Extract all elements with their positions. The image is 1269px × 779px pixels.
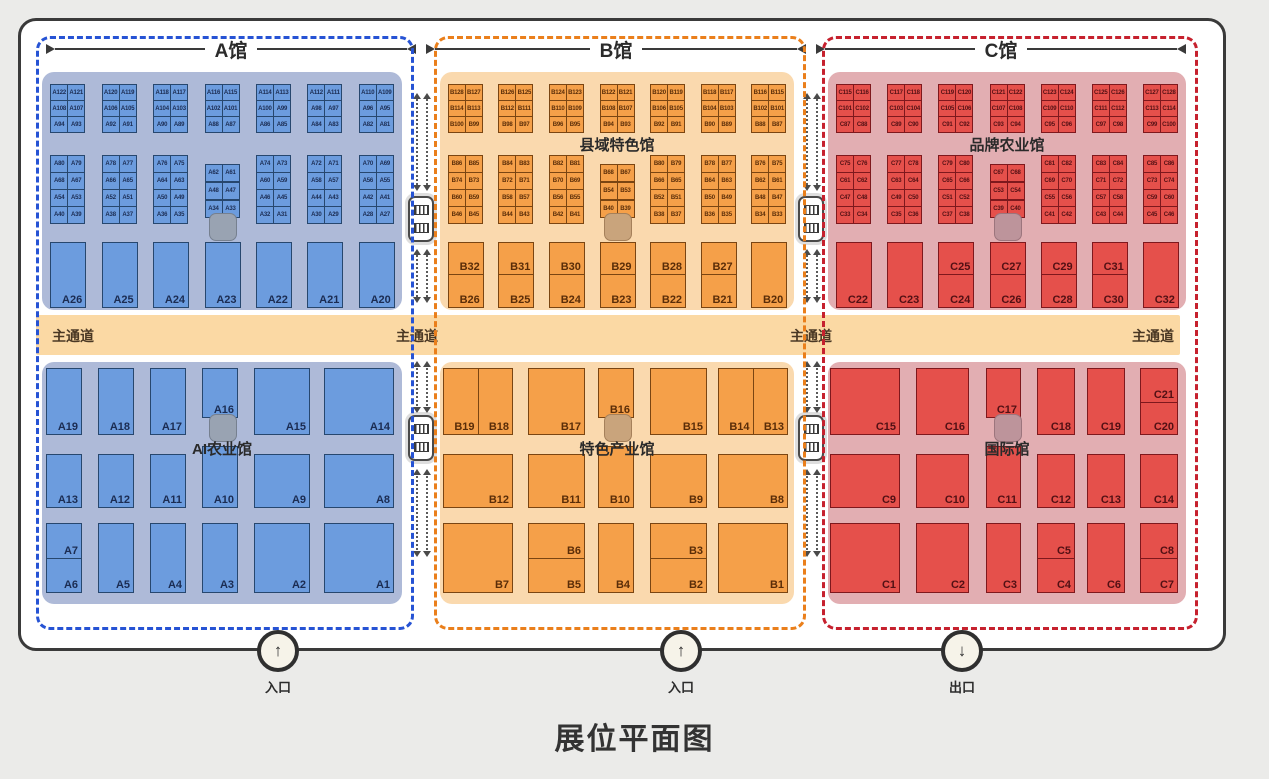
booth-C8-C7: C8C7 [1140, 523, 1178, 593]
arrowhead-icon [407, 44, 416, 54]
booth-A112: A112 [307, 84, 325, 101]
booth-A38: A38 [102, 206, 120, 224]
booth-B60: B60 [448, 189, 466, 207]
booth-label: C6 [1088, 524, 1124, 592]
booth-A118: A118 [153, 84, 171, 101]
booth-C90: C90 [904, 116, 922, 133]
booth-label: C23 [888, 243, 922, 307]
booth-C89: C89 [887, 116, 905, 133]
main-aisle: 主通道 主通道 主通道 主通道 [36, 315, 1180, 355]
booth-label: B22 [651, 275, 685, 307]
booth-label: B12 [444, 455, 512, 507]
booth-A12: A12 [98, 454, 134, 508]
booth-A53: A53 [67, 189, 85, 207]
booth-C77: C77 [887, 155, 905, 173]
main-aisle-label: 主通道 [790, 326, 832, 346]
hall-B-name: B馆 [590, 36, 643, 63]
hall-B-bottom-section-label: 特色产业馆 [440, 438, 794, 459]
booth-A98: A98 [307, 100, 325, 117]
booth-B84: B84 [498, 155, 516, 173]
booth-B31: B31 [499, 243, 533, 275]
booth-A81: A81 [376, 116, 394, 133]
booth-A13: A13 [46, 454, 82, 508]
booth-B114: B114 [448, 100, 466, 117]
booth-B72: B72 [498, 172, 516, 190]
booth-label: B23 [601, 275, 635, 307]
booth-B1: B1 [718, 523, 788, 593]
booth-C1: C1 [830, 523, 900, 593]
booth-B56: B56 [549, 189, 567, 207]
main-aisle-label: 主通道 [1132, 326, 1174, 346]
booth-B17: B17 [528, 368, 585, 435]
booth-C62: C62 [853, 172, 871, 190]
page-title: 展位平面图 [0, 714, 1269, 758]
entrance-circle: ↑ [257, 630, 299, 672]
booth-split: B14B13 [719, 369, 787, 434]
booth-A93: A93 [67, 116, 85, 133]
booth-B78: B78 [701, 155, 719, 173]
booth-C33: C33 [836, 206, 854, 224]
booth-B119: B119 [667, 84, 685, 101]
booth-B85: B85 [465, 155, 483, 173]
booth-A73: A73 [273, 155, 291, 173]
booth-A82: A82 [359, 116, 377, 133]
escalator-icon [798, 196, 824, 242]
main-aisle-label: 主通道 [52, 326, 94, 346]
booth-A69: A69 [376, 155, 394, 173]
booth-B43: B43 [515, 206, 533, 224]
booth-label: B26 [449, 275, 483, 307]
booth-B87: B87 [768, 116, 786, 133]
booth-C117: C117 [887, 84, 905, 101]
booth-label: C22 [837, 243, 871, 307]
booth-split: B19B18 [444, 369, 512, 434]
two-way-arrow-icon [416, 96, 418, 188]
booth-label: A21 [308, 243, 342, 307]
booth-C63: C63 [887, 172, 905, 190]
booth-B42: B42 [549, 206, 567, 224]
booth-C91: C91 [938, 116, 956, 133]
booth-B66: B66 [650, 172, 668, 190]
booth-A3: A3 [202, 523, 238, 593]
booth-A87: A87 [222, 116, 240, 133]
booth-C111: C111 [1092, 100, 1110, 117]
booth-A72: A72 [307, 155, 325, 173]
booth-A54: A54 [50, 189, 68, 207]
booth-A49: A49 [170, 189, 188, 207]
booth-B115: B115 [768, 84, 786, 101]
booth-B82: B82 [549, 155, 567, 173]
booth-C59: C59 [1143, 189, 1161, 207]
booth-C36: C36 [904, 206, 922, 224]
booth-label: C15 [831, 369, 899, 434]
booth-A39: A39 [67, 206, 85, 224]
booth-C92: C92 [955, 116, 973, 133]
booth-C7: C7 [1141, 559, 1177, 592]
escalator-step [804, 442, 819, 452]
booth-label: B21 [702, 275, 736, 307]
booth-B38: B38 [650, 206, 668, 224]
booth-B111: B111 [515, 100, 533, 117]
booth-A45: A45 [273, 189, 291, 207]
booth-A30: A30 [307, 206, 325, 224]
booth-A61: A61 [222, 164, 240, 182]
booth-B64: B64 [701, 172, 719, 190]
booth-C37: C37 [938, 206, 956, 224]
booth-C24: C25C24 [938, 242, 974, 308]
booth-C127: C127 [1143, 84, 1161, 101]
booth-A23: A23 [205, 242, 241, 308]
two-way-arrow-icon [416, 252, 418, 300]
booth-A60: A60 [256, 172, 274, 190]
hall-C-header: C馆 [816, 41, 1186, 57]
booth-A91: A91 [119, 116, 137, 133]
booth-label: A3 [203, 524, 237, 592]
booth-C108: C108 [1007, 100, 1025, 117]
booth-B46: B46 [448, 206, 466, 224]
booth-B121: B121 [617, 84, 635, 101]
booth-B44: B44 [498, 206, 516, 224]
booth-C15: C15 [830, 368, 900, 435]
booth-A19: A19 [46, 368, 82, 435]
booth-C120: C120 [955, 84, 973, 101]
booth-label: C16 [917, 369, 968, 434]
booth-C47: C47 [836, 189, 854, 207]
entrance-label: 入口 [248, 677, 308, 696]
booth-C14: C14 [1140, 454, 1178, 508]
booth-label: B9 [651, 455, 706, 507]
booth-C16: C16 [916, 368, 969, 435]
booth-C71: C71 [1092, 172, 1110, 190]
booth-C49: C49 [887, 189, 905, 207]
booth-C73: C73 [1143, 172, 1161, 190]
booth-label: C12 [1038, 455, 1074, 507]
booth-A108: A108 [50, 100, 68, 117]
booth-C64: C64 [904, 172, 922, 190]
booth-C94: C94 [1007, 116, 1025, 133]
booth-C23: C23 [887, 242, 923, 308]
escalator-icon [408, 415, 434, 461]
booth-B57: B57 [515, 189, 533, 207]
booth-A121: A121 [67, 84, 85, 101]
booth-B104: B104 [701, 100, 719, 117]
booth-label: C26 [991, 275, 1025, 307]
hall-A-header: A馆 [46, 41, 416, 57]
booth-label: B24 [550, 275, 584, 307]
two-way-arrow-icon [816, 472, 818, 554]
booth-C58: C58 [1109, 189, 1127, 207]
booth-label: B17 [529, 369, 584, 434]
booth-B52: B52 [650, 189, 668, 207]
booth-A65: A65 [119, 172, 137, 190]
two-way-arrow-icon [806, 472, 808, 554]
booth-B70: B70 [549, 172, 567, 190]
booth-A25: A25 [102, 242, 138, 308]
booth-B14-B13: B14B13 [718, 368, 788, 435]
booth-C101: C101 [836, 100, 854, 117]
booth-C5-C4: C5C4 [1037, 523, 1075, 593]
booth-C119: C119 [938, 84, 956, 101]
booth-A18: A18 [98, 368, 134, 435]
booth-A47: A47 [222, 182, 240, 200]
booth-A28: A28 [359, 206, 377, 224]
booth-C8: C8 [1141, 524, 1177, 559]
booth-label: A25 [103, 243, 137, 307]
booth-label: C32 [1144, 243, 1178, 307]
booth-A56: A56 [359, 172, 377, 190]
booth-C86: C86 [1160, 155, 1178, 173]
booth-C97: C97 [1092, 116, 1110, 133]
booth-A14: A14 [324, 368, 394, 435]
booth-A110: A110 [359, 84, 377, 101]
booth-A95: A95 [376, 100, 394, 117]
booth-A101: A101 [222, 100, 240, 117]
booth-B61: B61 [768, 172, 786, 190]
booth-C45: C45 [1143, 206, 1161, 224]
booth-C3: C3 [986, 523, 1021, 593]
booth-label: A26 [51, 243, 85, 307]
pillar [994, 213, 1022, 241]
booth-C67: C67 [990, 164, 1008, 182]
booth-C18: C18 [1037, 368, 1075, 435]
booth-C125: C125 [1092, 84, 1110, 101]
two-way-arrow-icon [426, 96, 428, 188]
booth-C52: C52 [955, 189, 973, 207]
booth-B45: B45 [465, 206, 483, 224]
booth-C122: C122 [1007, 84, 1025, 101]
booth-B123: B123 [566, 84, 584, 101]
booth-B126: B126 [498, 84, 516, 101]
arrow-down-icon: ↓ [958, 641, 967, 661]
hall-B-header: B馆 [426, 41, 806, 57]
booth-C105: C105 [938, 100, 956, 117]
booth-A86: A86 [256, 116, 274, 133]
booth-A111: A111 [324, 84, 342, 101]
header-line [825, 48, 975, 50]
booth-A16: A16 [202, 368, 238, 418]
two-way-arrow-icon [806, 252, 808, 300]
booth-A46: A46 [256, 189, 274, 207]
booth-C69: C69 [1041, 172, 1059, 190]
booth-A32: A32 [256, 206, 274, 224]
booth-C74: C74 [1160, 172, 1178, 190]
booth-B2: B2 [651, 559, 706, 592]
booth-C55: C55 [1041, 189, 1059, 207]
escalator-step [414, 205, 429, 215]
booth-B48: B48 [751, 189, 769, 207]
two-way-arrow-icon [416, 472, 418, 554]
booth-C95: C95 [1041, 116, 1059, 133]
booth-label: B25 [499, 275, 533, 307]
booth-C93: C93 [990, 116, 1008, 133]
booth-A41: A41 [376, 189, 394, 207]
booth-label: C13 [1088, 455, 1124, 507]
booth-A78: A78 [102, 155, 120, 173]
escalator-icon [798, 415, 824, 461]
booth-A7-A6: A7A6 [46, 523, 82, 593]
booth-A4: A4 [150, 523, 186, 593]
two-way-arrow-icon [806, 364, 808, 410]
booth-C19: C19 [1087, 368, 1125, 435]
booth-B108: B108 [600, 100, 618, 117]
booth-B19-B18: B19B18 [443, 368, 513, 435]
booth-C109: C109 [1041, 100, 1059, 117]
booth-C66: C66 [955, 172, 973, 190]
booth-C70: C70 [1058, 172, 1076, 190]
booth-B97: B97 [515, 116, 533, 133]
booth-A58: A58 [307, 172, 325, 190]
booth-A55: A55 [376, 172, 394, 190]
arrow-up-icon: ↑ [274, 641, 283, 661]
booth-B28: B28 [651, 243, 685, 275]
booth-C123: C123 [1041, 84, 1059, 101]
booth-B109: B109 [566, 100, 584, 117]
booth-A89: A89 [170, 116, 188, 133]
hall-B-top-section-label: 县域特色馆 [440, 134, 794, 155]
booth-A92: A92 [102, 116, 120, 133]
booth-B90: B90 [701, 116, 719, 133]
booth-A35: A35 [170, 206, 188, 224]
booth-C79: C79 [938, 155, 956, 173]
booth-label: C10 [917, 455, 968, 507]
booth-C51: C51 [938, 189, 956, 207]
booth-B3: B3 [651, 524, 706, 559]
booth-C30: C31C30 [1092, 242, 1128, 308]
booth-A20: A20 [359, 242, 395, 308]
booth-label: B7 [444, 524, 512, 592]
arrowhead-icon [816, 44, 825, 54]
booth-label: A17 [151, 369, 185, 434]
booth-B49: B49 [718, 189, 736, 207]
booth-B74: B74 [448, 172, 466, 190]
booth-B93: B93 [617, 116, 635, 133]
booth-C115: C115 [836, 84, 854, 101]
booth-C32: C32 [1143, 242, 1179, 308]
booth-label: C30 [1093, 275, 1127, 307]
booth-B29: B29 [601, 243, 635, 275]
booth-A42: A42 [359, 189, 377, 207]
booth-C5: C5 [1038, 524, 1074, 559]
booth-C46: C46 [1160, 206, 1178, 224]
booth-A44: A44 [307, 189, 325, 207]
booth-B89: B89 [718, 116, 736, 133]
booth-A21: A21 [307, 242, 343, 308]
hall-A-name: A馆 [205, 36, 258, 63]
booth-C112: C112 [1109, 100, 1127, 117]
booth-A7: A7 [47, 524, 81, 559]
booth-C104: C104 [904, 100, 922, 117]
booth-C102: C102 [853, 100, 871, 117]
booth-A57: A57 [324, 172, 342, 190]
booth-B112: B112 [498, 100, 516, 117]
booth-A1: A1 [324, 523, 394, 593]
booth-label: A5 [99, 524, 133, 592]
arrowhead-icon [426, 44, 435, 54]
escalator-icon [408, 196, 434, 242]
booth-A96: A96 [359, 100, 377, 117]
booth-A50: A50 [153, 189, 171, 207]
booth-C65: C65 [938, 172, 956, 190]
exit-circle: ↓ [941, 630, 983, 672]
booth-C75: C75 [836, 155, 854, 173]
booth-label: A18 [99, 369, 133, 434]
booth-C48: C48 [853, 189, 871, 207]
booth-C56: C56 [1058, 189, 1076, 207]
booth-A75: A75 [170, 155, 188, 173]
booth-label: B20 [752, 243, 786, 307]
booth-B65: B65 [667, 172, 685, 190]
booth-A36: A36 [153, 206, 171, 224]
booth-C88: C88 [853, 116, 871, 133]
header-line [1027, 48, 1177, 50]
booth-A66: A66 [102, 172, 120, 190]
booth-A52: A52 [102, 189, 120, 207]
booth-A106: A106 [102, 100, 120, 117]
booth-C53: C53 [990, 182, 1008, 200]
booth-label: A24 [154, 243, 188, 307]
booth-B36: B36 [701, 206, 719, 224]
booth-C84: C84 [1109, 155, 1127, 173]
arrowhead-icon [46, 44, 55, 54]
booth-A43: A43 [324, 189, 342, 207]
booth-C50: C50 [904, 189, 922, 207]
booth-B62: B62 [751, 172, 769, 190]
booth-A29: A29 [324, 206, 342, 224]
booth-C13: C13 [1087, 454, 1125, 508]
booth-C68: C68 [1007, 164, 1025, 182]
booth-B96: B96 [549, 116, 567, 133]
booth-B23: B29B23 [600, 242, 636, 308]
booth-C107: C107 [990, 100, 1008, 117]
booth-A105: A105 [119, 100, 137, 117]
booth-label: A8 [325, 455, 393, 507]
booth-A67: A67 [67, 172, 85, 190]
booth-B107: B107 [617, 100, 635, 117]
booth-label: A20 [360, 243, 394, 307]
pillar [604, 213, 632, 241]
hall-A-bottom-section-label: AI农业馆 [42, 438, 402, 459]
booth-C85: C85 [1143, 155, 1161, 173]
booth-B69: B69 [566, 172, 584, 190]
booth-label: A16 [203, 369, 237, 417]
booth-A76: A76 [153, 155, 171, 173]
booth-C42: C42 [1058, 206, 1076, 224]
arrowhead-icon [1177, 44, 1186, 54]
booth-C110: C110 [1058, 100, 1076, 117]
booth-label: A13 [47, 455, 81, 507]
booth-C106: C106 [955, 100, 973, 117]
escalator-step [414, 424, 429, 434]
booth-B95: B95 [566, 116, 584, 133]
booth-A104: A104 [153, 100, 171, 117]
arrow-up-icon: ↑ [677, 641, 686, 661]
booth-C22: C22 [836, 242, 872, 308]
booth-B110: B110 [549, 100, 567, 117]
booth-B7: B7 [443, 523, 513, 593]
booth-B92: B92 [650, 116, 668, 133]
booth-B77: B77 [718, 155, 736, 173]
booth-A85: A85 [273, 116, 291, 133]
booth-B91: B91 [667, 116, 685, 133]
booth-B100: B100 [448, 116, 466, 133]
booth-C4: C4 [1038, 559, 1074, 592]
booth-B102: B102 [751, 100, 769, 117]
booth-C126: C126 [1109, 84, 1127, 101]
booth-B47: B47 [768, 189, 786, 207]
booth-A59: A59 [273, 172, 291, 190]
booth-A63: A63 [170, 172, 188, 190]
booth-label: C24 [939, 275, 973, 307]
